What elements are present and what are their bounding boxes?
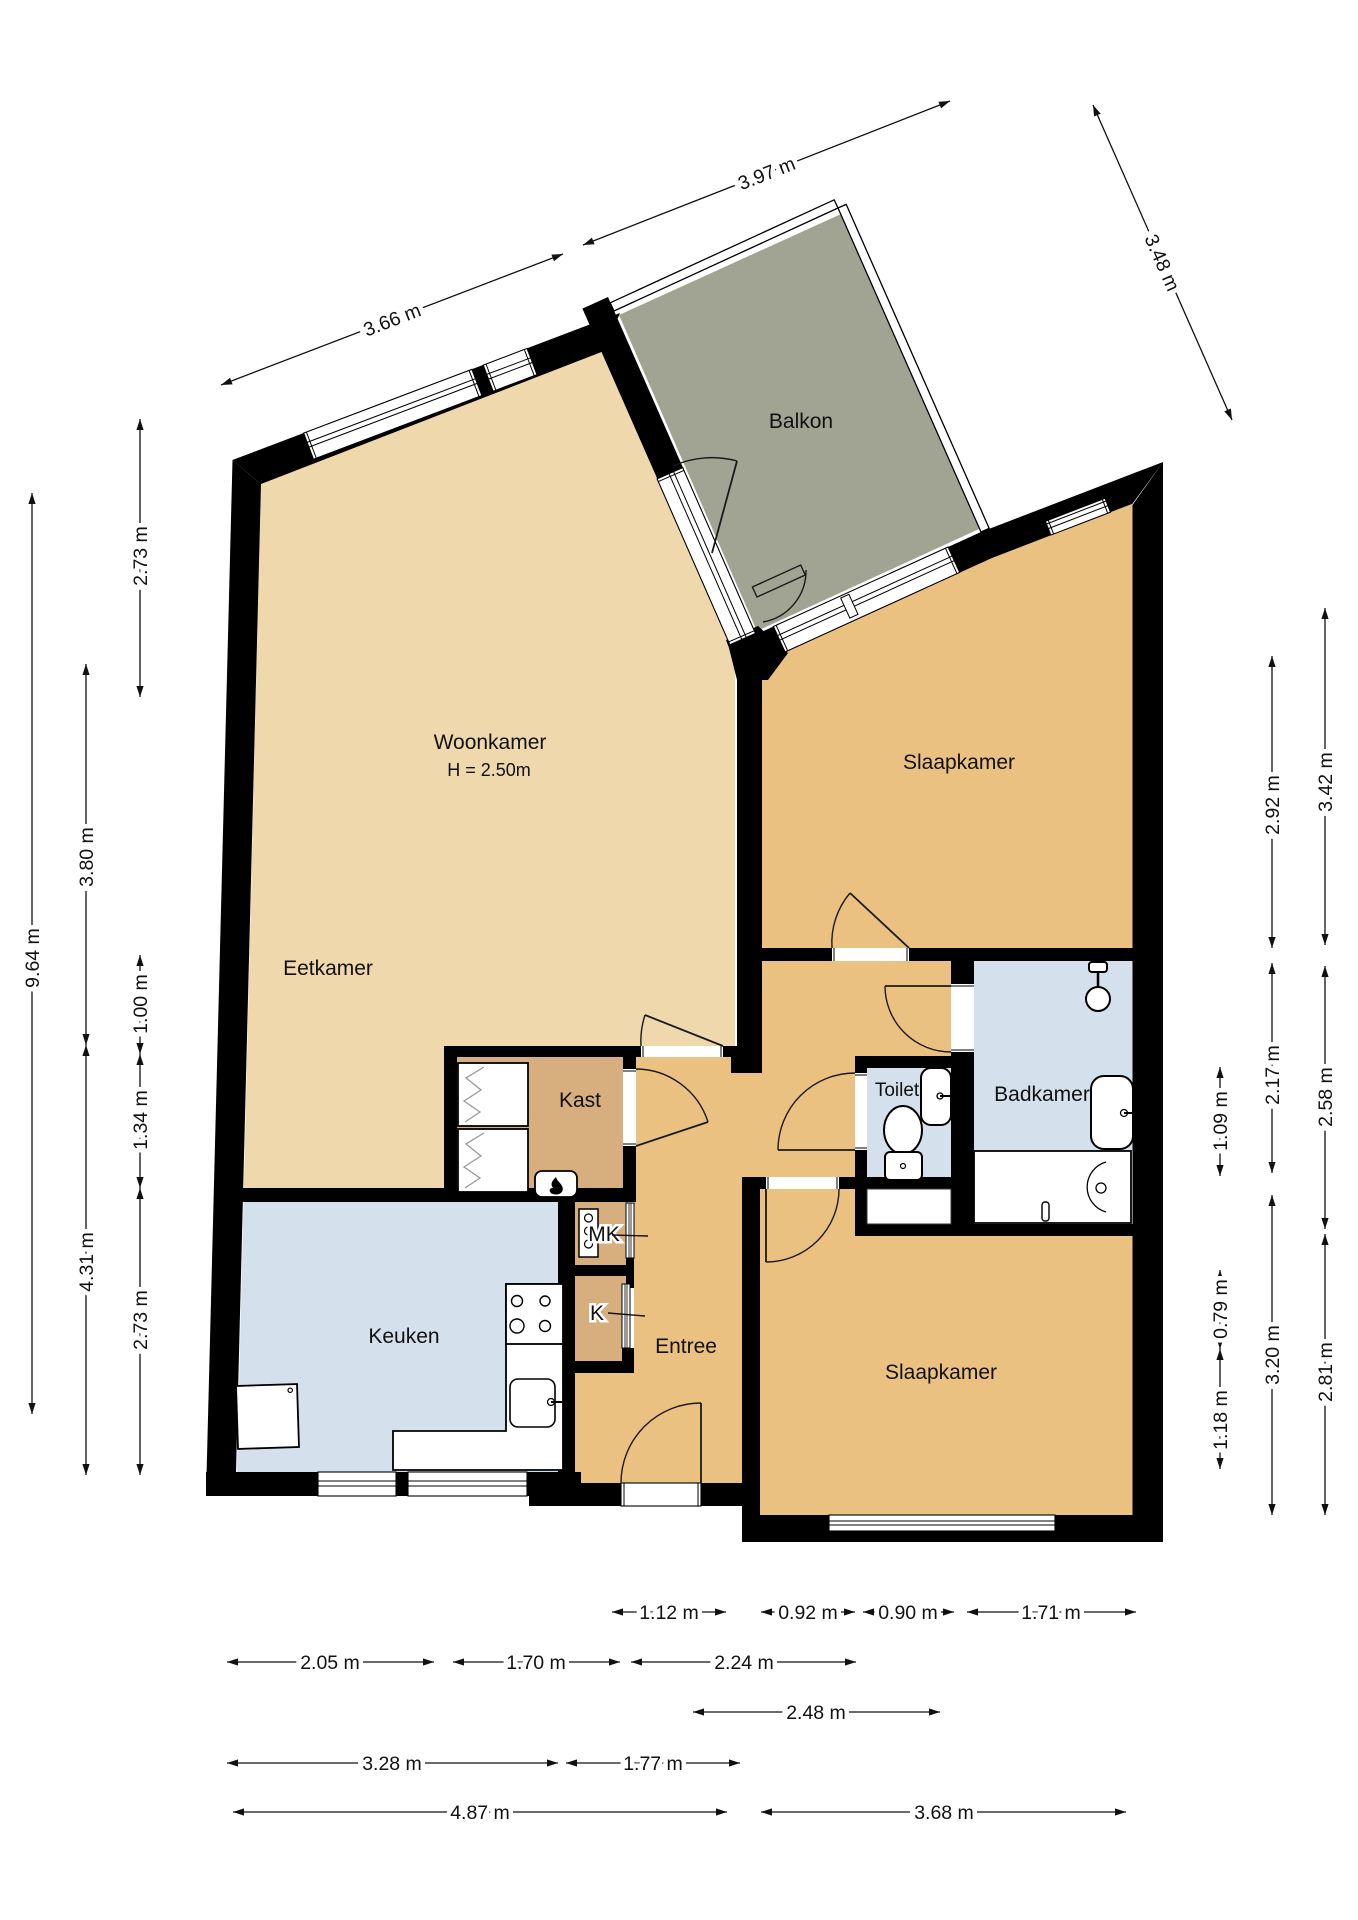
svg-text:3.68 m: 3.68 m — [914, 1802, 974, 1824]
svg-text:1.70 m: 1.70 m — [506, 1652, 566, 1674]
svg-text:Entree: Entree — [655, 1335, 717, 1358]
svg-text:Slaapkamer: Slaapkamer — [903, 751, 1015, 774]
svg-text:3.80 m: 3.80 m — [76, 827, 98, 887]
svg-text:1.18 m: 1.18 m — [1210, 1390, 1232, 1450]
svg-text:1.12 m: 1.12 m — [639, 1602, 699, 1624]
svg-text:2.73 m: 2.73 m — [130, 1290, 152, 1350]
svg-text:2.81 m: 2.81 m — [1315, 1342, 1337, 1402]
svg-text:2.05 m: 2.05 m — [300, 1652, 360, 1674]
svg-text:1.71 m: 1.71 m — [1021, 1602, 1081, 1624]
svg-text:Kast: Kast — [559, 1089, 601, 1112]
svg-text:K: K — [590, 1302, 604, 1325]
svg-text:Woonkamer: Woonkamer — [434, 731, 547, 754]
svg-text:2.73 m: 2.73 m — [130, 526, 152, 586]
svg-text:1.09 m: 1.09 m — [1210, 1091, 1232, 1151]
svg-text:2.17 m: 2.17 m — [1262, 1045, 1284, 1105]
svg-text:9.64 m: 9.64 m — [22, 928, 44, 988]
svg-text:H = 2.50m: H = 2.50m — [447, 760, 531, 780]
svg-text:4.87 m: 4.87 m — [450, 1802, 510, 1824]
svg-text:Keuken: Keuken — [368, 1325, 439, 1348]
svg-text:0.92 m: 0.92 m — [778, 1602, 838, 1624]
svg-text:Balkon: Balkon — [769, 410, 833, 433]
svg-text:1.34 m: 1.34 m — [130, 1090, 152, 1150]
svg-text:4.31 m: 4.31 m — [76, 1232, 98, 1292]
svg-text:2.92 m: 2.92 m — [1262, 775, 1284, 835]
svg-text:3.20 m: 3.20 m — [1262, 1325, 1284, 1385]
svg-text:3.42 m: 3.42 m — [1315, 752, 1337, 812]
svg-text:Badkamer: Badkamer — [994, 1083, 1090, 1106]
svg-text:1.77 m: 1.77 m — [623, 1753, 683, 1775]
svg-text:2.48 m: 2.48 m — [786, 1702, 846, 1724]
svg-text:Toilet: Toilet — [875, 1080, 920, 1101]
svg-text:Slaapkamer: Slaapkamer — [885, 1361, 997, 1384]
svg-text:Eetkamer: Eetkamer — [283, 957, 373, 980]
svg-text:0.79 m: 0.79 m — [1210, 1279, 1232, 1339]
svg-text:2.24 m: 2.24 m — [714, 1652, 774, 1674]
svg-text:1.00 m: 1.00 m — [130, 974, 152, 1034]
svg-text:3.28 m: 3.28 m — [362, 1753, 422, 1775]
svg-text:2.58 m: 2.58 m — [1315, 1067, 1337, 1127]
svg-text:0.90 m: 0.90 m — [878, 1602, 938, 1624]
